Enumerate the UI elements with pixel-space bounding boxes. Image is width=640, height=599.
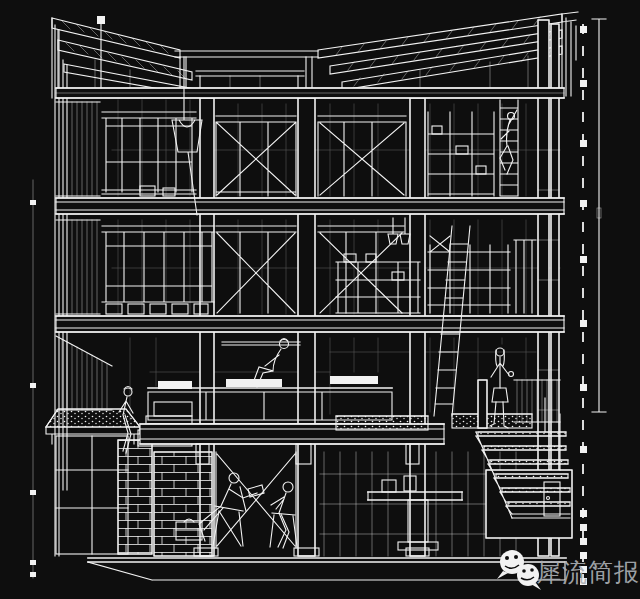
eave-beam bbox=[56, 88, 564, 98]
floor-slab-3f bbox=[56, 198, 564, 214]
floor-slab-2f bbox=[56, 316, 564, 332]
ground-line bbox=[88, 558, 566, 580]
bench-platform bbox=[148, 342, 392, 424]
second-floor-rack bbox=[428, 236, 536, 313]
third-floor-shelves bbox=[428, 112, 494, 196]
roof-structure bbox=[52, 12, 578, 98]
figure-seated-forward bbox=[270, 482, 297, 548]
left-wall bbox=[55, 25, 100, 556]
scale-bar-right bbox=[580, 24, 587, 585]
second-floor-windows bbox=[102, 226, 214, 314]
watermark: 犀流简报 bbox=[497, 550, 640, 590]
ground-floor-left-wall bbox=[56, 336, 112, 410]
figure-climbing bbox=[500, 110, 517, 174]
watermark-text: 犀流简报 bbox=[536, 558, 640, 587]
dimension-line-right bbox=[592, 19, 606, 412]
brick-wall-left bbox=[118, 440, 152, 554]
background-structure-grid bbox=[112, 100, 560, 420]
pendant-lamps bbox=[388, 218, 410, 244]
section-drawing-canvas: 犀流简报 bbox=[0, 0, 640, 599]
